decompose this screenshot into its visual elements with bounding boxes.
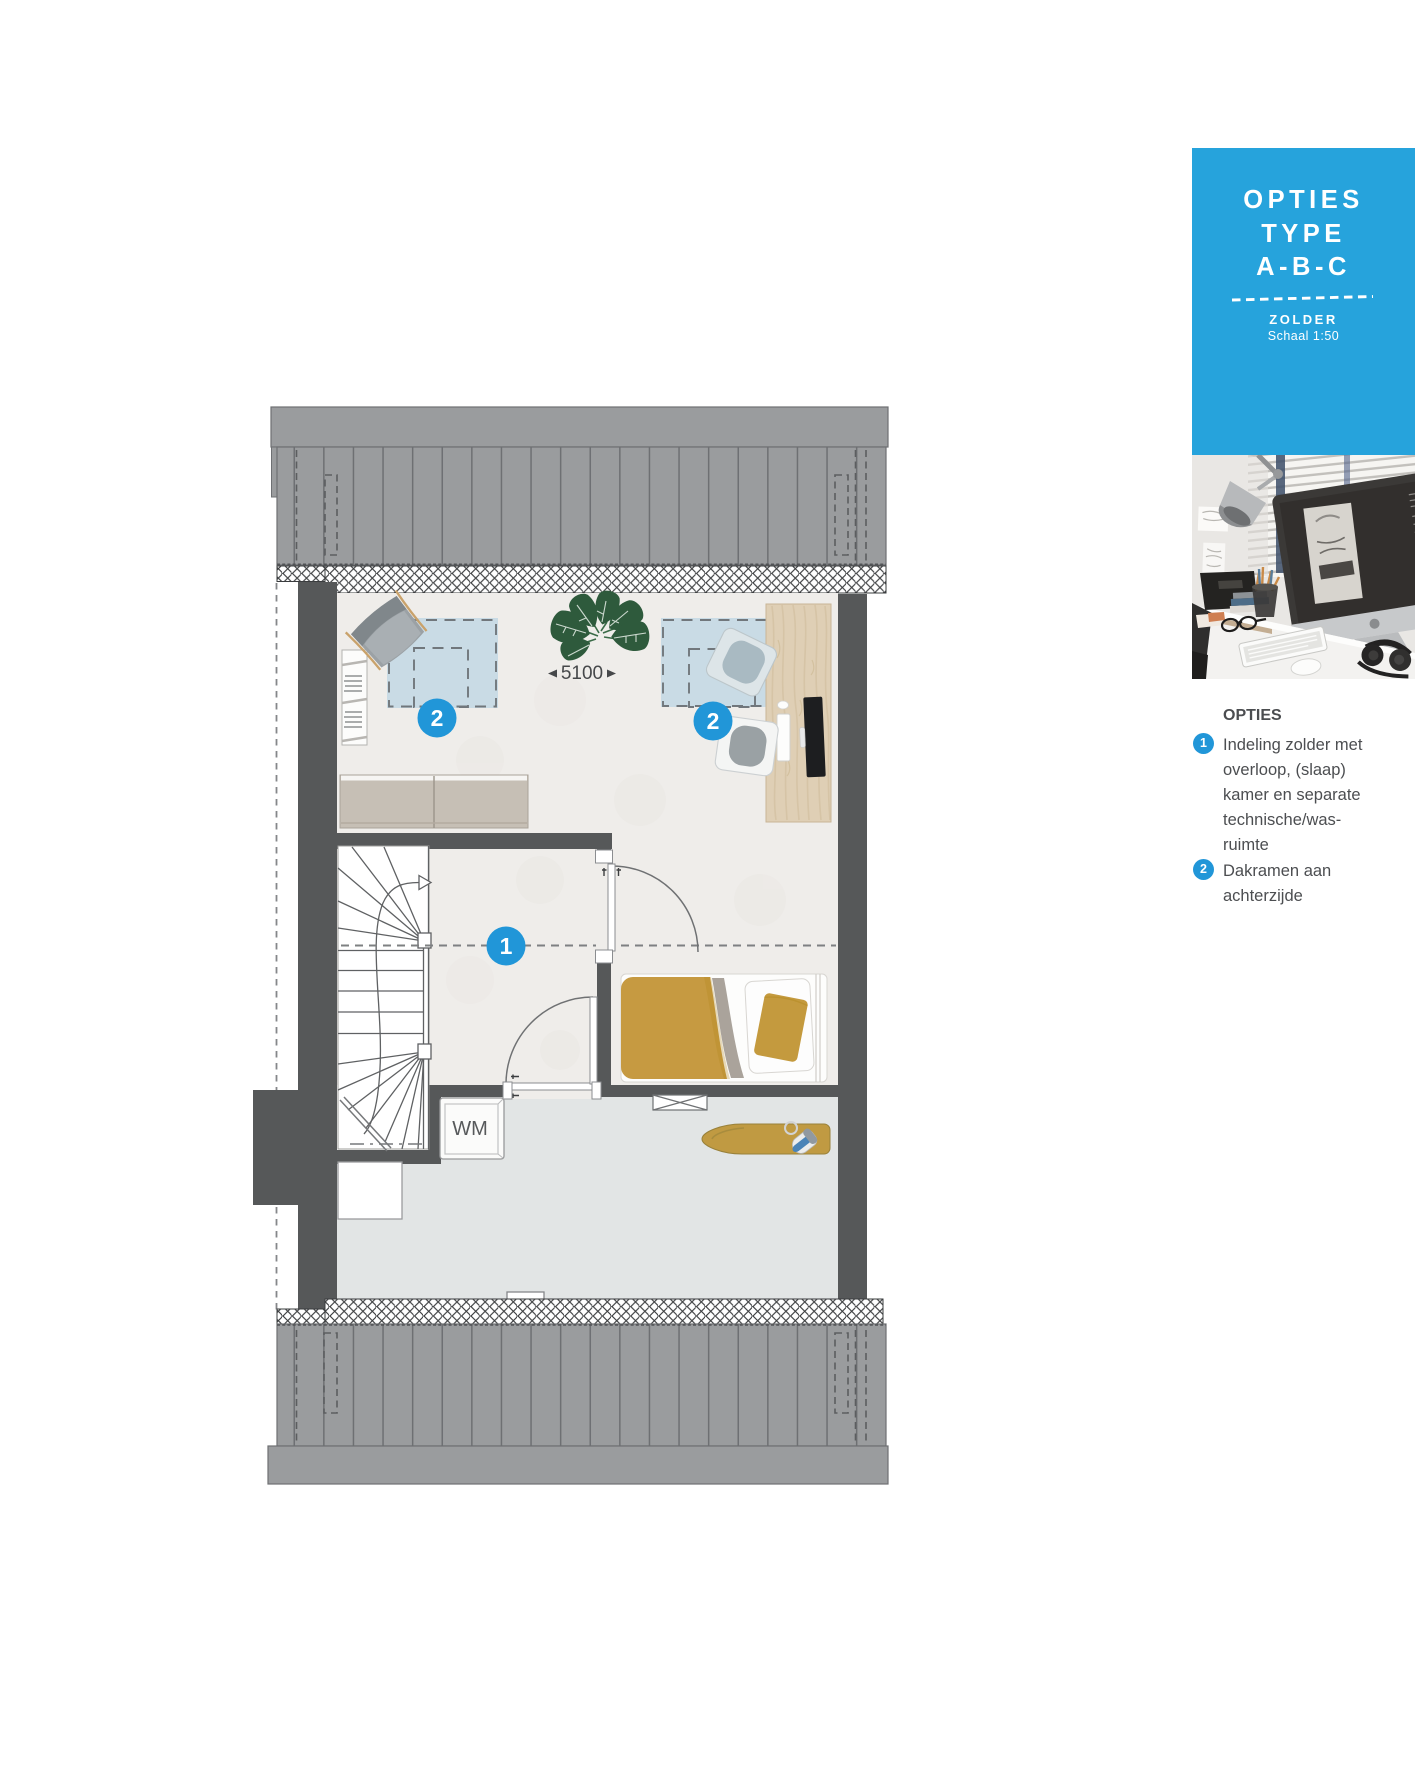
svg-text:2: 2 [707, 708, 720, 734]
svg-text:5100: 5100 [561, 663, 603, 684]
svg-text:1: 1 [500, 933, 513, 959]
svg-text:2: 2 [431, 705, 444, 731]
svg-text:WM: WM [452, 1118, 488, 1140]
